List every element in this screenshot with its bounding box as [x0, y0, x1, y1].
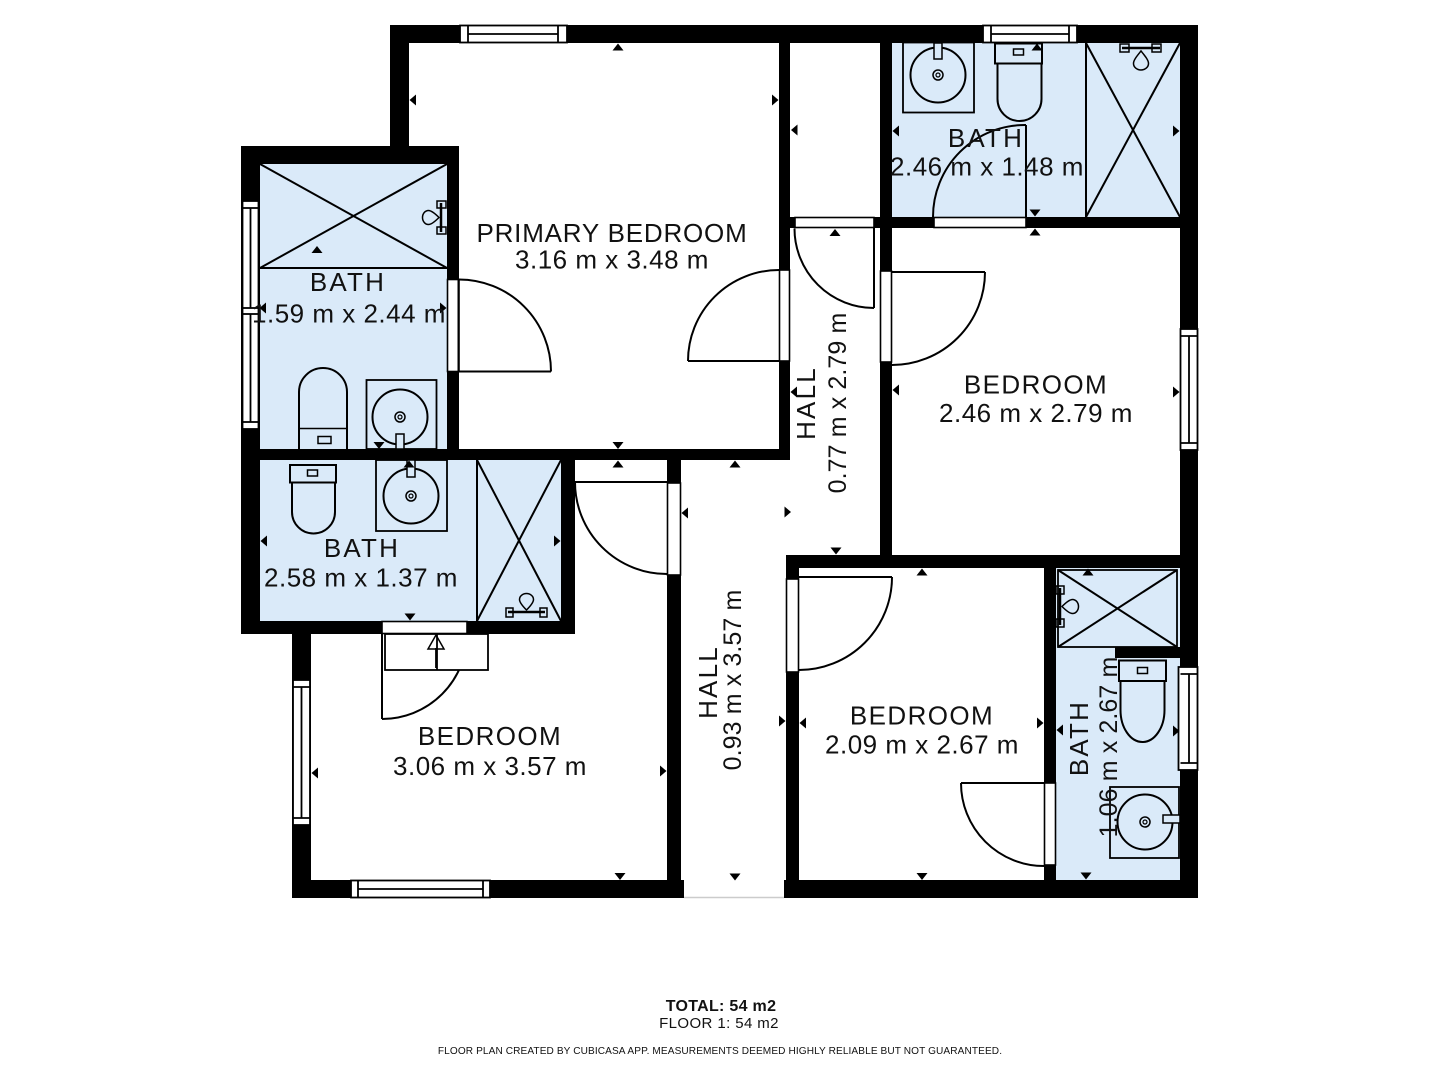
- svg-text:FLOOR PLAN CREATED BY CUBICASA: FLOOR PLAN CREATED BY CUBICASA APP. MEAS…: [438, 1046, 1002, 1057]
- svg-text:0.93 m x 3.57 m: 0.93 m x 3.57 m: [719, 590, 747, 771]
- svg-text:BATH: BATH: [324, 533, 400, 563]
- svg-text:2.09 m x 2.67 m: 2.09 m x 2.67 m: [825, 730, 1019, 760]
- svg-text:BATH: BATH: [310, 267, 386, 297]
- svg-text:3.16 m x 3.48 m: 3.16 m x 3.48 m: [515, 245, 709, 275]
- svg-text:1.06 m x 2.67 m: 1.06 m x 2.67 m: [1095, 657, 1123, 838]
- svg-text:BEDROOM: BEDROOM: [850, 701, 994, 731]
- svg-text:BATH: BATH: [1064, 700, 1094, 776]
- svg-text:BEDROOM: BEDROOM: [964, 370, 1108, 400]
- svg-text:FLOOR 1: 54 m2: FLOOR 1: 54 m2: [659, 1015, 779, 1032]
- svg-text:HALL: HALL: [791, 366, 821, 440]
- svg-text:BEDROOM: BEDROOM: [418, 721, 562, 751]
- svg-text:PRIMARY BEDROOM: PRIMARY BEDROOM: [476, 218, 747, 248]
- svg-text:3.06 m x 3.57 m: 3.06 m x 3.57 m: [393, 751, 587, 781]
- svg-text:2.46 m x 2.79 m: 2.46 m x 2.79 m: [939, 398, 1133, 428]
- svg-text:0.77 m x 2.79 m: 0.77 m x 2.79 m: [824, 313, 852, 494]
- svg-text:BATH: BATH: [948, 123, 1024, 153]
- svg-text:1.59 m x 2.44 m: 1.59 m x 2.44 m: [252, 299, 446, 329]
- svg-text:2.46 m x 1.48 m: 2.46 m x 1.48 m: [890, 152, 1084, 182]
- svg-text:2.58 m x 1.37 m: 2.58 m x 1.37 m: [264, 563, 458, 593]
- svg-text:TOTAL: 54 m2: TOTAL: 54 m2: [666, 998, 777, 1015]
